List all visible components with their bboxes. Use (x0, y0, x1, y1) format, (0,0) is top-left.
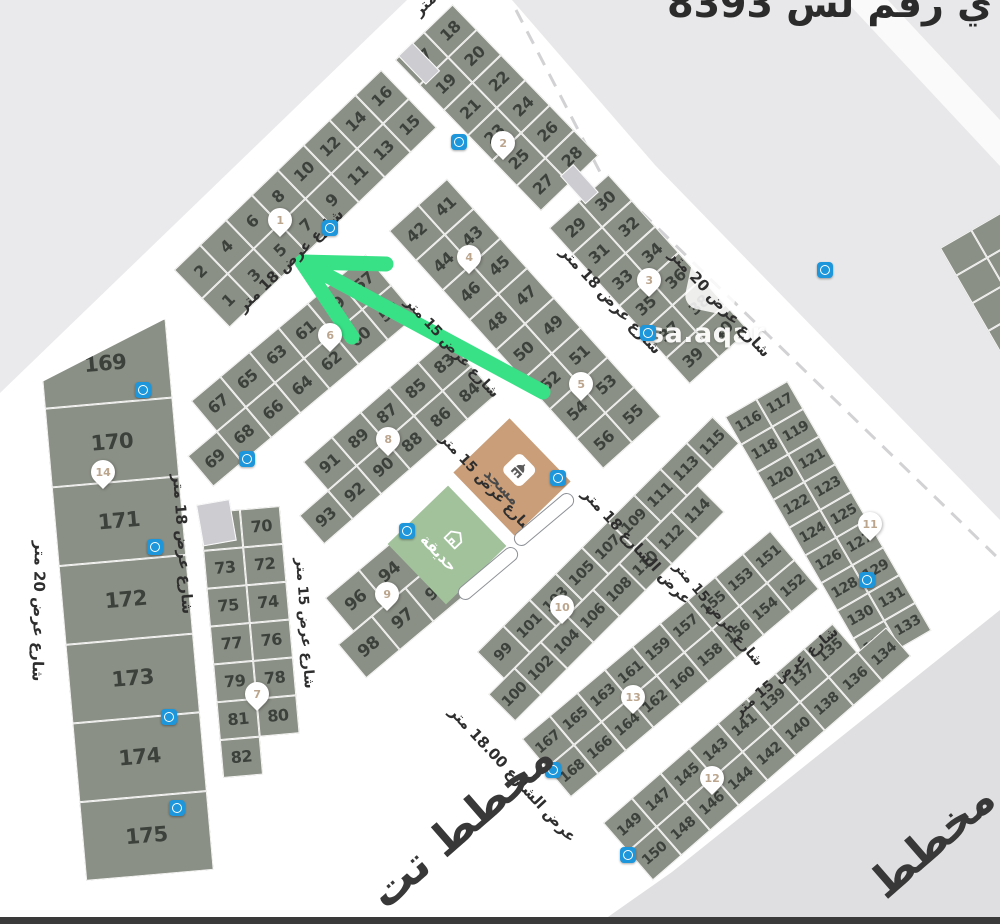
plot-70[interactable]: 70 (240, 506, 283, 547)
street-view-marker-icon[interactable] (161, 709, 177, 725)
plot-175[interactable]: 175 (79, 791, 213, 881)
block-1-16: 24681012141613579111315 (174, 70, 437, 328)
street-view-marker-icon[interactable] (399, 523, 415, 539)
plot-172[interactable]: 172 (59, 555, 193, 645)
plot-74[interactable]: 74 (246, 582, 289, 623)
street-label: شارع عرض 20 متر (29, 541, 49, 682)
plot-169[interactable]: 169 (38, 319, 172, 409)
street-label: متر (410, 0, 440, 19)
street-view-marker-icon[interactable] (239, 451, 255, 467)
street-view-marker-icon[interactable] (322, 220, 338, 236)
garden-content: حديقة (416, 514, 477, 576)
street-view-marker-icon[interactable] (147, 539, 163, 555)
street-view-marker-icon[interactable] (620, 847, 636, 863)
plan-title-fragment: مخطط تت (360, 731, 565, 919)
block-70-82: 71707372757477767978818082 (200, 506, 303, 778)
street-view-marker-icon[interactable] (135, 382, 151, 398)
street-view-marker-icon[interactable] (859, 572, 875, 588)
block-edge-partial (940, 212, 1000, 359)
bottom-bar (0, 917, 1000, 924)
alley-gap-3 (196, 499, 237, 546)
plot-174[interactable]: 174 (72, 712, 206, 802)
street-label: شارع عرض 15 متر (292, 557, 317, 689)
street-view-marker-icon[interactable] (451, 134, 467, 150)
plot-cell (196, 499, 237, 546)
street-view-marker-icon[interactable] (550, 470, 566, 486)
plot-82[interactable]: 82 (220, 737, 263, 778)
plot-72[interactable]: 72 (243, 544, 286, 585)
plot-75[interactable]: 75 (207, 585, 250, 626)
plan-number-title: ي رقم لس 8393 (667, 0, 992, 26)
plot-76[interactable]: 76 (250, 620, 293, 661)
street-view-marker-icon[interactable] (817, 262, 833, 278)
plot-73[interactable]: 73 (203, 547, 246, 588)
plot-171[interactable]: 171 (52, 476, 186, 566)
plot-173[interactable]: 173 (66, 634, 200, 724)
plan-title-fragment: مخطط (860, 773, 1000, 909)
street-view-marker-icon[interactable] (169, 800, 185, 816)
plot-77[interactable]: 77 (210, 623, 253, 664)
street-view-marker-icon[interactable] (640, 325, 656, 341)
plot-map: 2468101214161357911131517181920212223242… (0, 0, 1000, 924)
